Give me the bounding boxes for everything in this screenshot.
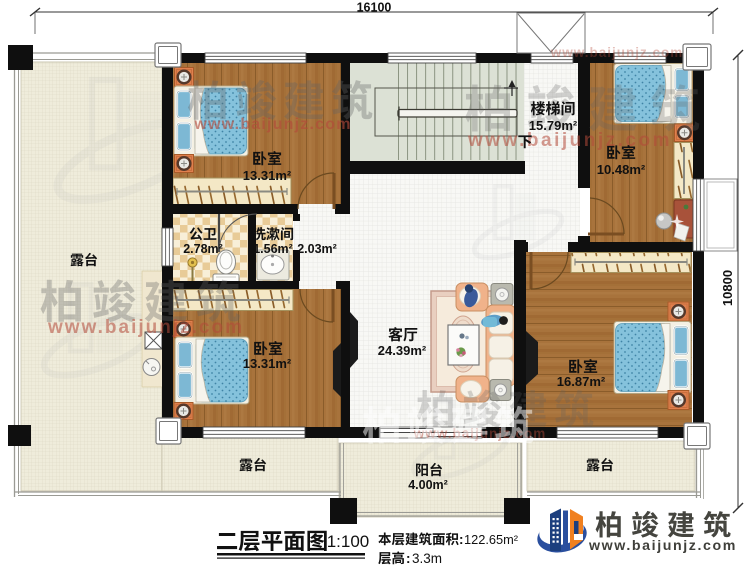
svg-text:13.31m²: 13.31m² bbox=[243, 356, 292, 371]
svg-text:www.baijunjz.com: www.baijunjz.com bbox=[193, 116, 351, 133]
svg-text::: : bbox=[406, 551, 411, 566]
svg-text:www.baijunjz.com: www.baijunjz.com bbox=[467, 130, 672, 151]
svg-text::: : bbox=[459, 532, 464, 547]
svg-text:4.00m²: 4.00m² bbox=[408, 478, 448, 492]
svg-text:www.baijunjz.com: www.baijunjz.com bbox=[550, 45, 684, 60]
svg-text:16100: 16100 bbox=[357, 1, 392, 15]
svg-text:www.baijunjz.com: www.baijunjz.com bbox=[47, 317, 244, 338]
svg-text:10800: 10800 bbox=[720, 270, 735, 306]
svg-text:www.baijunjz.com: www.baijunjz.com bbox=[588, 538, 737, 554]
svg-text:10.48m²: 10.48m² bbox=[597, 162, 646, 177]
svg-text:13.31m²: 13.31m² bbox=[243, 168, 292, 183]
svg-text:2.78m²: 2.78m² bbox=[183, 242, 223, 256]
svg-text:15.79m²: 15.79m² bbox=[529, 118, 578, 133]
svg-text:1:100: 1:100 bbox=[327, 532, 370, 551]
svg-text:3.3m: 3.3m bbox=[412, 551, 442, 566]
svg-text:2.03m²: 2.03m² bbox=[297, 242, 337, 256]
svg-text:24.39m²: 24.39m² bbox=[378, 343, 427, 358]
svg-text:1.56m²: 1.56m² bbox=[253, 242, 293, 256]
svg-text:122.65m²: 122.65m² bbox=[464, 532, 519, 547]
svg-text:16.87m²: 16.87m² bbox=[557, 374, 606, 389]
